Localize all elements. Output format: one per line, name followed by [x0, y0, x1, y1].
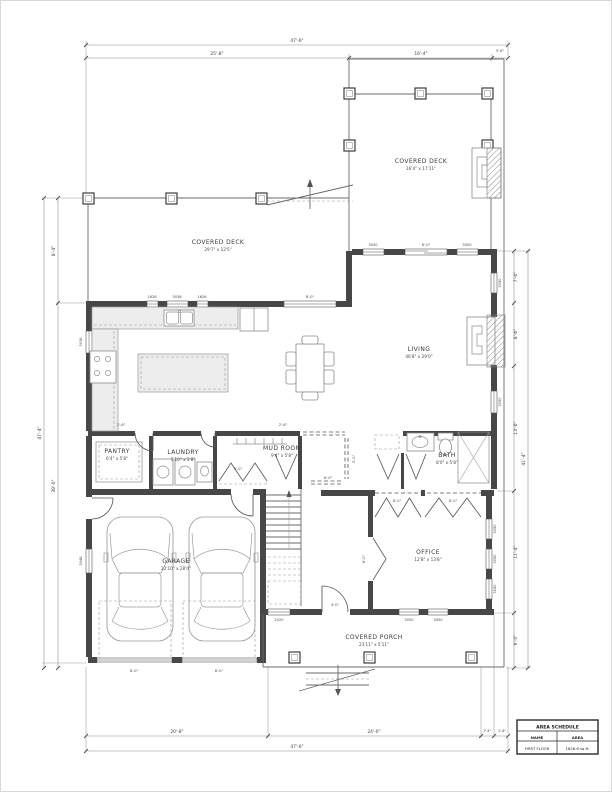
area-schedule-table: AREA SCHEDULE NAME AREA FIRST FLOOR 1628… [517, 720, 598, 754]
room-dims-office: 12'8" x 13'8" [414, 557, 441, 562]
dim-office-open-2: 8'-0" [449, 499, 458, 503]
deck-fireplace [472, 148, 501, 198]
room-dims-mudroom: 9'4" x 5'8" [271, 453, 293, 458]
left-covered-deck: COVERED DECK 29'7" x 12'5" [83, 179, 353, 301]
garage-door-1 [97, 658, 172, 662]
dim-left-seg1: 8'-4" [51, 246, 57, 256]
bath: BATH 8'0" x 5'8" [375, 432, 489, 483]
schedule-col-area: AREA [572, 735, 583, 740]
window-label-office-4: 3050 [404, 618, 414, 622]
mud-room: MUD ROOM 9'4" x 5'8" 9'-0" [219, 438, 301, 484]
dim-top-right: 5'-6" [496, 49, 504, 53]
door-label-front: 3'-0" [331, 603, 340, 607]
range [90, 351, 116, 383]
window-label-left-1: 3036 [79, 337, 83, 347]
window-label-left-2: 3048 [79, 556, 83, 566]
door-label-living-slider: 6'-0" [422, 243, 431, 247]
door-label-garage-2: 8'-0" [215, 669, 224, 673]
dim-hall-case: 3'-0" [352, 454, 356, 463]
room-label-bath: BATH [438, 452, 456, 459]
covered-porch: COVERED PORCH 23'11" x 5'11" [263, 615, 504, 696]
room-label-mudroom: MUD ROOM [263, 445, 301, 452]
room-label-deck-left: COVERED DECK [192, 239, 245, 246]
dim-top-mid: 16'-4" [414, 51, 427, 57]
dim-office-open-1: 8'-0" [393, 499, 402, 503]
dim-right-seg5: 6'-0" [513, 635, 519, 645]
dim-hall-opening: 6'-0" [324, 476, 333, 480]
dim-bottom-seg3: 1'-4" [483, 729, 491, 733]
room-label-office: OFFICE [416, 549, 440, 556]
room-dims-porch: 23'11" x 5'11" [359, 642, 389, 647]
dim-bottom-seg1: 20'-8" [170, 729, 183, 735]
window-label-office-5: 3050 [433, 618, 443, 622]
garage: GARAGE 22'10" x 28'0" 8'-0" 8'-0" [92, 494, 258, 673]
window-label-kitchen-2: 3036 [172, 295, 182, 299]
dining-table [286, 336, 334, 400]
laundry: LAUNDRY 5'10" x 5'8" [153, 433, 215, 485]
dim-office-door: 6'-0" [362, 554, 366, 563]
floor-plan-sheet: 47'-6" 25'-8" 16'-4" 5'-6" 20'-8" 24'-0"… [0, 0, 612, 792]
window-label-living-1: 3050 [368, 243, 378, 247]
refrigerator [240, 308, 268, 331]
room-dims-laundry: 5'10" x 5'8" [171, 457, 196, 462]
room-dims-living: 46'8" x 29'0" [405, 354, 432, 359]
pantry: PANTRY 6'4" x 5'8" [96, 433, 153, 482]
porch-steps [299, 665, 375, 696]
kitchen: 2'-6" 2'-6" [90, 307, 288, 431]
room-label-porch: COVERED PORCH [345, 634, 402, 641]
deck-posts [344, 88, 493, 151]
schedule-title: AREA SCHEDULE [536, 725, 579, 731]
floor-plan-drawing: 47'-6" 25'-8" 16'-4" 5'-6" 20'-8" 24'-0"… [1, 1, 612, 793]
dim-right-overall: 41'-4" [521, 452, 527, 465]
roof-slope-marker [267, 179, 353, 209]
vanity-sink [407, 433, 434, 451]
room-label-garage: GARAGE [162, 558, 190, 565]
door-label-garage-1: 8'-0" [130, 669, 139, 673]
schedule-row-name: FIRST FLOOR [525, 746, 550, 751]
car-left [104, 517, 176, 641]
dim-right-seg1: 7'-6" [513, 272, 519, 282]
dim-closet: 9'-0" [234, 467, 243, 471]
room-dims-garage: 22'10" x 28'0" [161, 566, 191, 571]
window-label-right-2: 3050 [498, 397, 502, 407]
window-label-living-2: 3050 [462, 243, 472, 247]
room-label-pantry: PANTRY [104, 448, 129, 455]
window-label-kitchen-4: 8'-0" [306, 295, 315, 299]
porch-posts [289, 652, 477, 663]
kitchen-sink [164, 310, 194, 326]
room-label-laundry: LAUNDRY [167, 449, 198, 456]
office: OFFICE 12'8" x 13'8" 8'-0" 8'-0" 6'-0" [362, 493, 481, 580]
window-label-kitchen-1: 1626 [147, 295, 157, 299]
living-room: LIVING 46'8" x 29'0" [405, 315, 505, 367]
room-label-living: LIVING [408, 346, 431, 353]
window-label-porch: 2020 [274, 618, 284, 622]
dimensions-top: 47'-6" 25'-8" 16'-4" 5'-6" [84, 38, 510, 198]
dim-bottom-seg4: 1'-6" [498, 729, 506, 733]
hall: 6'-0" 3'-0" 3'-0" [303, 432, 356, 612]
window-label-office-2: 3050 [493, 554, 497, 564]
window-label-right-1: 3050 [498, 278, 502, 288]
dim-bottom-seg2: 24'-0" [367, 729, 380, 735]
deck-posts-left [83, 193, 267, 204]
window-label-office-1: 3050 [493, 524, 497, 534]
stairs [266, 489, 301, 606]
shower [458, 432, 489, 483]
dimensions-left: 8'-4" 39'-0" 47'-4" [37, 196, 86, 670]
dim-left-overall: 47'-4" [37, 426, 43, 439]
garage-door-2 [182, 658, 257, 662]
room-dims-pantry: 6'4" x 5'8" [106, 456, 128, 461]
dim-right-seg3: 13'-6" [513, 421, 519, 434]
dim-right-seg2: 8'-6" [513, 329, 519, 339]
room-dims-deck-left: 29'7" x 12'5" [204, 247, 231, 252]
dimensions-right: 7'-6" 8'-6" 13'-6" 11'-4" 6'-0" 41'-4" [492, 249, 530, 670]
dim-top-overall: 47'-6" [290, 38, 303, 44]
dim-counter-2: 2'-6" [279, 423, 288, 427]
kitchen-island [138, 354, 228, 392]
room-dims-bath: 8'0" x 5'8" [436, 460, 458, 465]
room-label-deck-upper: COVERED DECK [395, 158, 448, 165]
room-dims-deck-upper: 16'4" x 17'11" [406, 166, 436, 171]
car-right [186, 517, 258, 641]
living-fireplace [467, 315, 505, 367]
window-label-office-3: 3050 [493, 584, 497, 594]
dim-counter-1: 2'-6" [117, 423, 126, 427]
window-label-kitchen-3: 1626 [197, 295, 207, 299]
dim-bottom-overall: 47'-6" [290, 744, 303, 750]
dim-left-seg2: 39'-0" [51, 479, 57, 492]
dim-right-seg4: 11'-4" [513, 545, 519, 558]
schedule-row-area: 1628.6 sq ft. [565, 746, 589, 751]
dim-top-left: 25'-8" [210, 51, 223, 57]
schedule-col-name: NAME [531, 735, 544, 740]
